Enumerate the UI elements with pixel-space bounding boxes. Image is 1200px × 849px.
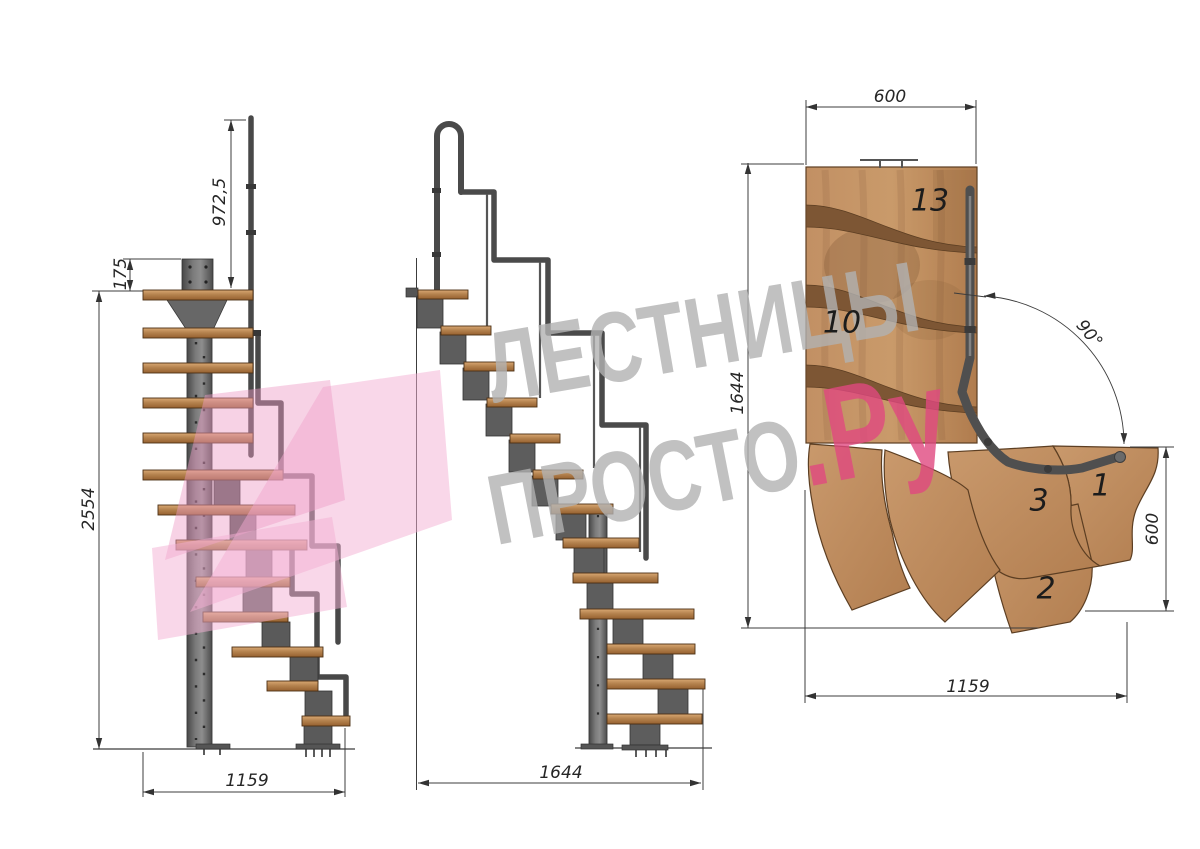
dim-front-width-label: 1159 (225, 771, 268, 791)
step-label-10: 10 (823, 306, 861, 341)
dim-plan-left-length-label: 1644 (728, 371, 748, 414)
dim-plan-bottom-length-label: 1159 (946, 677, 989, 697)
step-label-3: 3 (1029, 484, 1048, 519)
staircase-drawing (0, 0, 1200, 849)
dim-total-height-label: 2554 (79, 487, 99, 530)
dim-plan-top-width-label: 600 (874, 87, 906, 107)
side-balusters (487, 194, 640, 552)
step-label-2: 2 (1036, 572, 1055, 607)
dim-side-length-label: 1644 (539, 763, 582, 783)
step-label-1: 1 (1091, 469, 1110, 504)
plan-handrail (962, 190, 1126, 473)
plan-view-drawing (741, 100, 1174, 703)
dim-handrail-height-label: 972,5 (210, 178, 230, 227)
step-label-13: 13 (911, 184, 949, 219)
drawing-canvas: ЛЕСТНИЦЫ ПРОСТО.Ру 972,5 175 2554 1159 1… (0, 0, 1200, 849)
dim-plate-height-label: 175 (111, 258, 131, 290)
front-mounting-plate (182, 259, 213, 291)
dim-plan-right-width-label: 600 (1143, 513, 1163, 545)
side-view-drawing (406, 124, 712, 790)
